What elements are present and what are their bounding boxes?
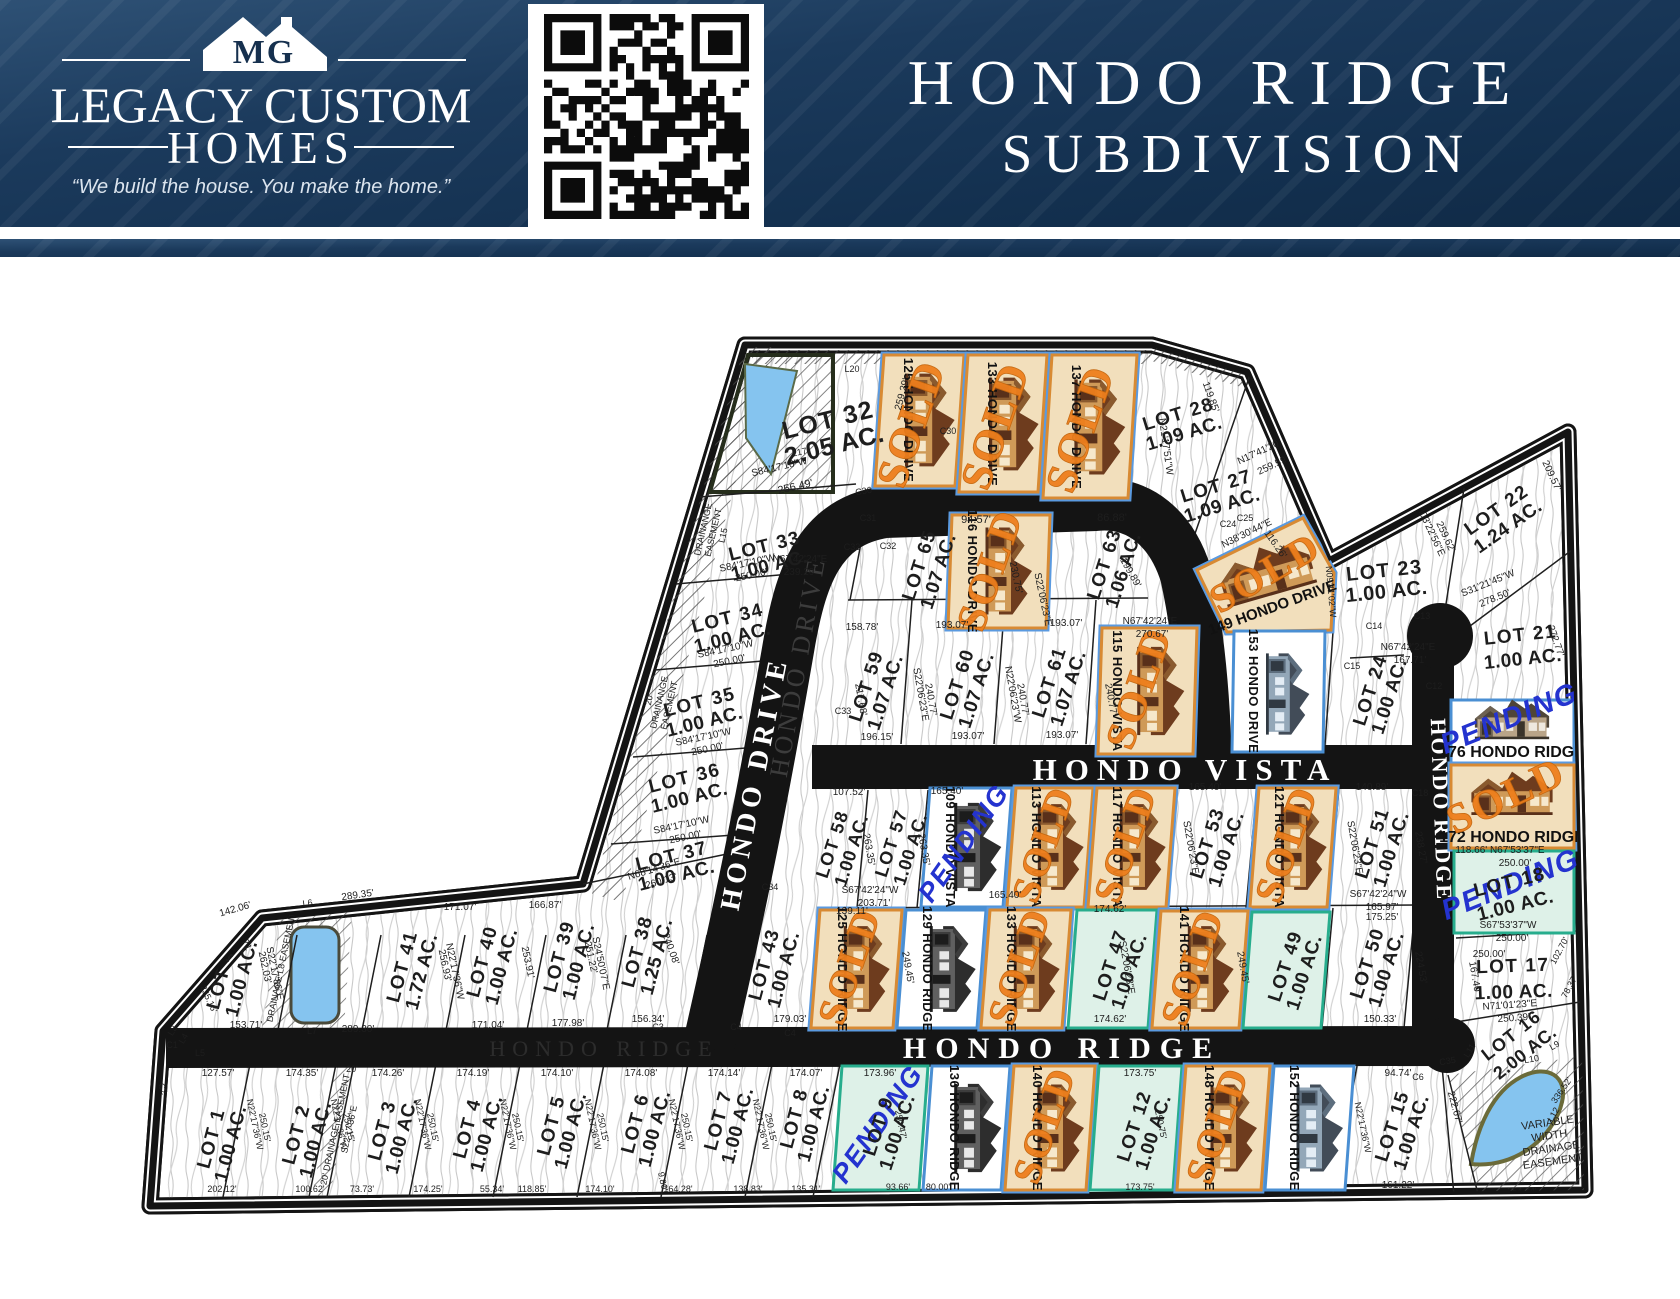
svg-text:93.66': 93.66' (886, 1182, 911, 1192)
svg-text:HONDO RIDGE: HONDO RIDGE (903, 1032, 1221, 1065)
svg-text:136 HONDO RIDGE: 136 HONDO RIDGE (947, 1065, 962, 1191)
svg-text:250.00': 250.00' (1496, 933, 1529, 944)
svg-text:174.25': 174.25' (413, 1184, 443, 1194)
svg-text:C34: C34 (762, 882, 779, 892)
svg-text:55.34': 55.34' (480, 1184, 505, 1194)
svg-text:C18: C18 (1412, 788, 1429, 798)
svg-text:HONDO RIDGE: HONDO RIDGE (908, 47, 1527, 118)
svg-text:129 HONDO RIDGE: 129 HONDO RIDGE (920, 906, 935, 1032)
svg-text:C12: C12 (1426, 681, 1443, 691)
svg-text:HOMES: HOMES (167, 123, 355, 173)
svg-text:C1: C1 (166, 1040, 178, 1050)
svg-text:20': 20' (346, 1064, 358, 1074)
svg-text:N67'42'24"E: N67'42'24"E (1123, 616, 1178, 627)
svg-text:C32: C32 (844, 542, 861, 552)
svg-text:L6: L6 (302, 897, 313, 908)
svg-text:140.89': 140.89' (1356, 782, 1389, 793)
svg-text:N67'42'24"E: N67'42'24"E (1381, 642, 1436, 653)
svg-text:175.25': 175.25' (1366, 912, 1399, 923)
svg-text:173.75': 173.75' (1125, 1182, 1155, 1192)
svg-text:C4: C4 (730, 1022, 742, 1032)
svg-text:C31: C31 (860, 513, 877, 523)
svg-text:153.71': 153.71' (230, 1020, 263, 1031)
svg-text:250.39': 250.39' (1497, 1012, 1530, 1025)
svg-text:139.11': 139.11' (836, 906, 868, 917)
svg-text:173.96': 173.96' (864, 1068, 897, 1079)
svg-text:250.00': 250.00' (1473, 949, 1506, 960)
svg-text:202.12': 202.12' (207, 1184, 237, 1194)
svg-text:HONDO RIDGE: HONDO RIDGE (489, 1036, 718, 1061)
svg-text:118.66' N67'53'37"E: 118.66' N67'53'37"E (1455, 845, 1544, 856)
svg-text:C6: C6 (1412, 1072, 1424, 1082)
svg-text:165.40': 165.40' (989, 890, 1022, 901)
svg-text:“We build the house. You make: “We build the house. You make the home.” (72, 176, 452, 198)
svg-text:165.40': 165.40' (1189, 782, 1222, 793)
svg-text:S67'42'24"W: S67'42'24"W (842, 885, 899, 896)
svg-text:250.00': 250.00' (1499, 858, 1532, 869)
svg-text:177.98': 177.98' (552, 1018, 585, 1029)
svg-text:171.04': 171.04' (472, 1020, 505, 1031)
svg-text:179.03': 179.03' (774, 1014, 807, 1025)
svg-text:152 HONDO RIDGE: 152 HONDO RIDGE (1287, 1065, 1302, 1191)
svg-text:174.62': 174.62' (1094, 1014, 1127, 1025)
svg-text:C13: C13 (1414, 611, 1431, 621)
svg-text:270.67': 270.67' (1136, 629, 1169, 640)
svg-text:118.85': 118.85' (518, 1184, 547, 1194)
svg-text:193.07': 193.07' (952, 731, 985, 742)
svg-text:171.07': 171.07' (444, 902, 477, 913)
svg-text:C25: C25 (1237, 513, 1254, 523)
svg-text:153 HONDO DRIVE: 153 HONDO DRIVE (1246, 629, 1261, 754)
svg-text:158.78': 158.78' (846, 622, 879, 633)
svg-text:80.00': 80.00' (926, 1182, 951, 1192)
svg-text:166.87': 166.87' (529, 900, 562, 911)
svg-text:193.07': 193.07' (1046, 730, 1079, 741)
svg-text:239.29': 239.29' (784, 567, 817, 578)
svg-text:94.74': 94.74' (1385, 1068, 1412, 1079)
svg-text:86.88': 86.88' (1097, 512, 1127, 524)
svg-text:174.07': 174.07' (790, 1068, 823, 1079)
svg-text:127.57': 127.57' (202, 1068, 235, 1079)
svg-text:135.31': 135.31' (791, 1184, 821, 1194)
svg-text:C14: C14 (1366, 621, 1383, 631)
svg-text:237.97': 237.97' (1287, 420, 1313, 454)
svg-text:174.26': 174.26' (372, 1068, 405, 1079)
svg-text:107.52': 107.52' (833, 787, 866, 798)
svg-text:167.71': 167.71' (1394, 655, 1427, 666)
svg-text:L7: L7 (307, 1026, 317, 1036)
svg-text:C15: C15 (1344, 661, 1361, 671)
svg-text:289.30': 289.30' (342, 1024, 375, 1035)
svg-text:L20: L20 (844, 364, 859, 374)
svg-text:S67'42'24"W: S67'42'24"W (1350, 889, 1407, 900)
svg-text:174.19': 174.19' (457, 1068, 490, 1079)
svg-text:SUBDIVISION: SUBDIVISION (1002, 123, 1474, 184)
svg-text:C32: C32 (880, 541, 897, 551)
svg-text:MG: MG (233, 34, 296, 71)
svg-text:174.10': 174.10' (585, 1184, 615, 1194)
svg-text:C3: C3 (652, 1022, 664, 1032)
svg-text:N67'42'24"E: N67'42'24"E (773, 554, 828, 565)
svg-text:174.62': 174.62' (1094, 904, 1127, 915)
svg-text:C24: C24 (1220, 519, 1237, 529)
svg-text:94.57': 94.57' (961, 514, 991, 526)
svg-text:174.14': 174.14' (708, 1068, 741, 1079)
svg-text:174.10': 174.10' (541, 1068, 574, 1079)
svg-text:C33: C33 (835, 706, 852, 716)
svg-text:C4: C4 (784, 1028, 796, 1038)
svg-text:138.83': 138.83' (733, 1184, 763, 1194)
svg-text:100.62': 100.62' (295, 1184, 325, 1194)
svg-text:L5: L5 (195, 1048, 205, 1058)
svg-text:142.06': 142.06' (218, 900, 252, 920)
svg-text:165.40': 165.40' (931, 786, 964, 797)
svg-text:S67'53'37"W: S67'53'37"W (1480, 920, 1537, 931)
svg-text:150.33': 150.33' (1364, 1014, 1397, 1025)
svg-text:C30: C30 (940, 426, 957, 436)
svg-text:174.08': 174.08' (625, 1068, 658, 1079)
svg-text:193.07': 193.07' (1050, 618, 1083, 629)
svg-text:174.35': 174.35' (286, 1068, 319, 1079)
svg-text:196.15': 196.15' (861, 732, 894, 743)
svg-text:161.22': 161.22' (1382, 1180, 1415, 1191)
svg-text:73.73': 73.73' (350, 1184, 375, 1194)
svg-text:193.07': 193.07' (936, 620, 969, 631)
svg-text:173.75': 173.75' (1124, 1068, 1157, 1079)
